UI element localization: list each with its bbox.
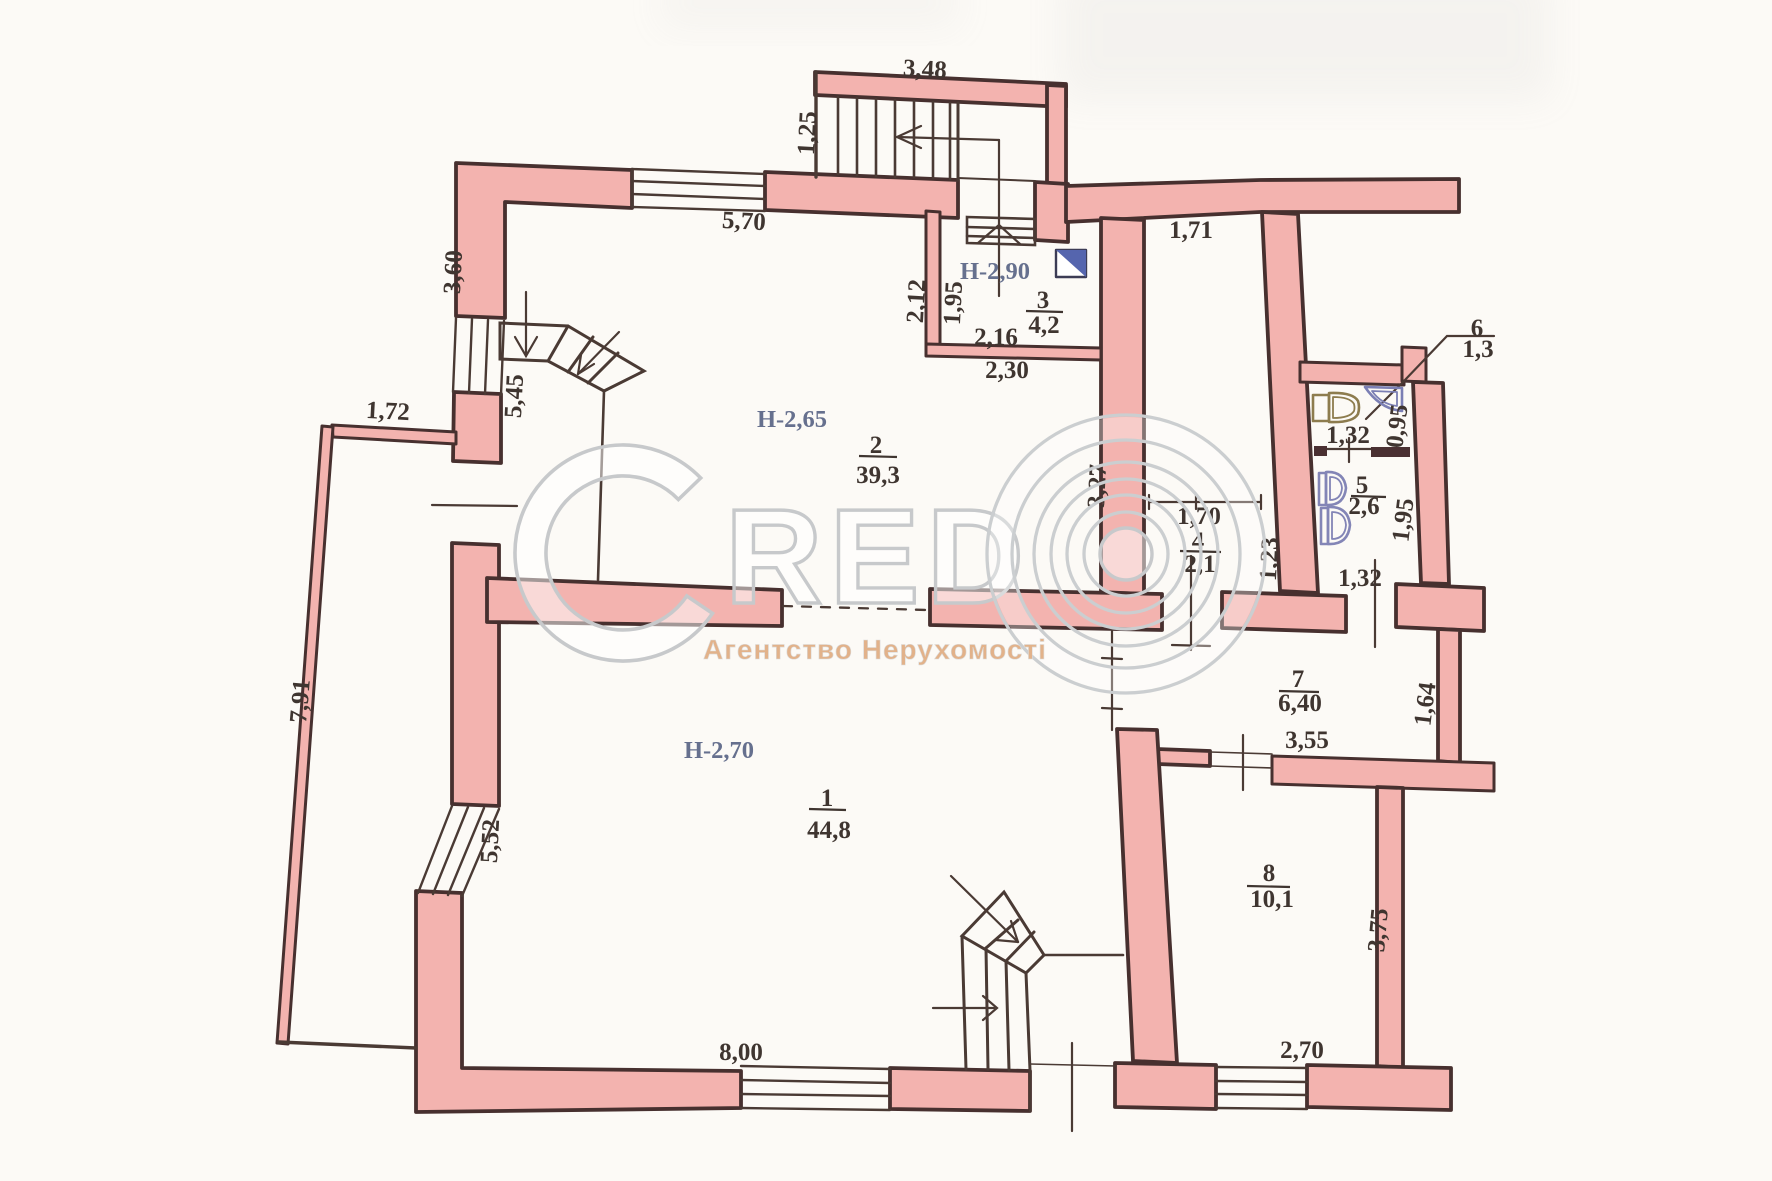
- svg-text:2,16: 2,16: [974, 324, 1018, 351]
- svg-text:5,52: 5,52: [476, 819, 505, 864]
- svg-text:0,95: 0,95: [1381, 403, 1413, 450]
- svg-text:7: 7: [1292, 666, 1305, 693]
- svg-text:44,8: 44,8: [807, 817, 851, 844]
- svg-text:3,55: 3,55: [1285, 727, 1329, 754]
- svg-text:10,1: 10,1: [1250, 886, 1294, 913]
- svg-text:2,6: 2,6: [1348, 493, 1379, 520]
- svg-text:Агентство Нерухомості: Агентство Нерухомості: [703, 634, 1047, 665]
- svg-text:RED: RED: [725, 481, 1031, 632]
- svg-text:8: 8: [1263, 860, 1276, 887]
- svg-text:1,3: 1,3: [1462, 336, 1493, 363]
- svg-text:1,32: 1,32: [1326, 422, 1370, 449]
- svg-text:4,2: 4,2: [1028, 312, 1059, 339]
- svg-text:5,70: 5,70: [721, 207, 766, 236]
- svg-text:2,70: 2,70: [1280, 1037, 1324, 1064]
- svg-text:1,64: 1,64: [1409, 680, 1441, 727]
- svg-text:H-2,90: H-2,90: [960, 258, 1030, 285]
- svg-text:3,75: 3,75: [1363, 907, 1394, 953]
- svg-text:3,48: 3,48: [902, 55, 947, 84]
- svg-text:5,45: 5,45: [500, 374, 529, 419]
- svg-text:3,60: 3,60: [439, 250, 468, 295]
- svg-text:1,71: 1,71: [1169, 217, 1213, 244]
- svg-text:1,72: 1,72: [365, 397, 410, 426]
- svg-text:1,32: 1,32: [1338, 565, 1382, 592]
- svg-text:2,30: 2,30: [985, 357, 1029, 384]
- svg-text:1,95: 1,95: [939, 281, 968, 326]
- svg-text:1,95: 1,95: [1387, 497, 1419, 544]
- svg-text:1,25: 1,25: [793, 111, 822, 156]
- svg-text:6,40: 6,40: [1278, 690, 1322, 717]
- svg-text:H-2,65: H-2,65: [757, 406, 827, 433]
- svg-text:3: 3: [1037, 287, 1050, 314]
- svg-text:H-2,70: H-2,70: [684, 737, 754, 764]
- svg-text:1: 1: [821, 785, 834, 812]
- svg-text:2: 2: [870, 432, 883, 459]
- svg-text:2,12: 2,12: [902, 279, 931, 324]
- svg-text:7,91: 7,91: [285, 678, 316, 724]
- svg-text:8,00: 8,00: [719, 1039, 763, 1066]
